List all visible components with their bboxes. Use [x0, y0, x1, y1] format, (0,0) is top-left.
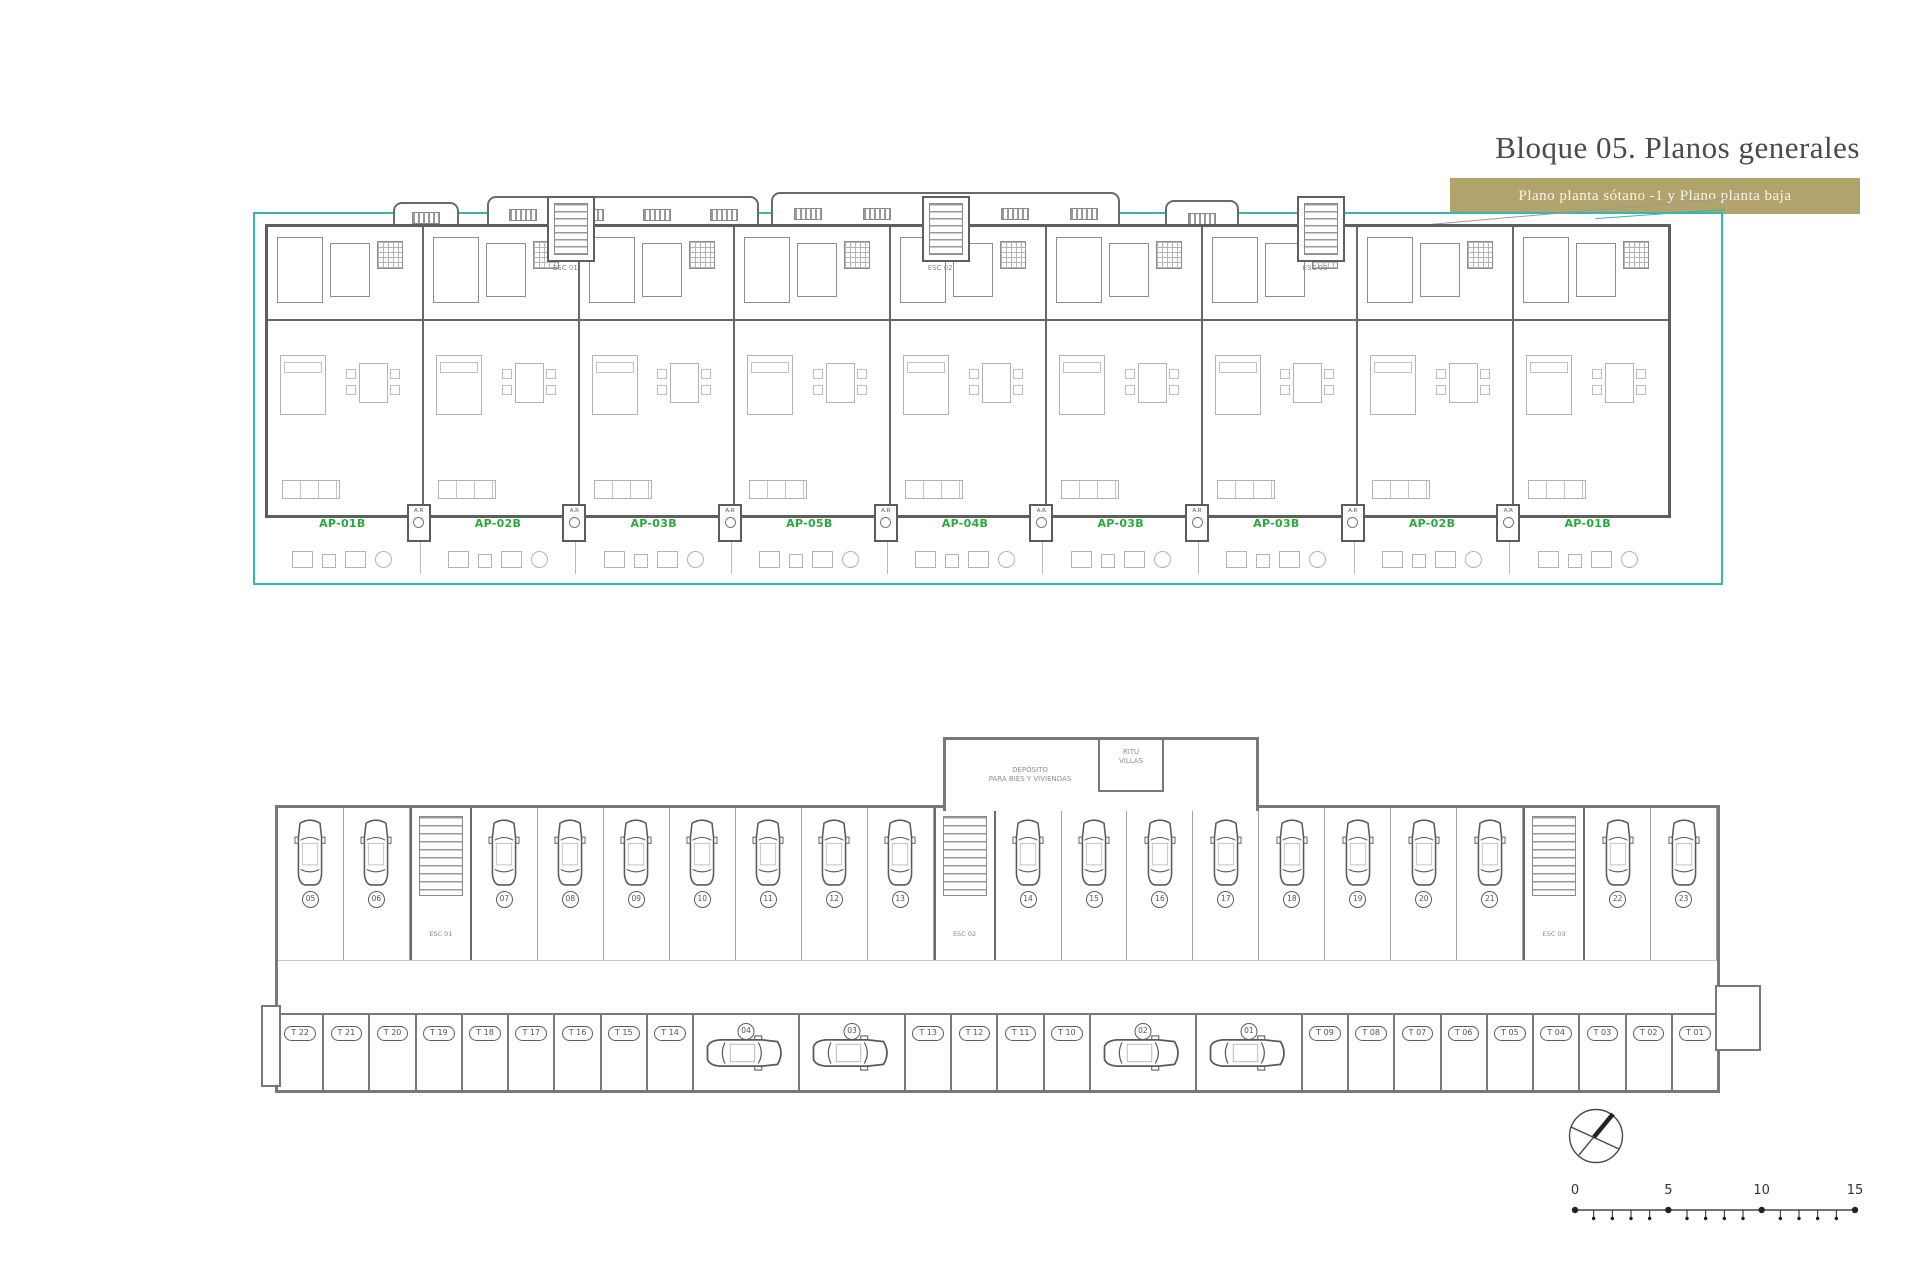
lounge-chair — [501, 551, 522, 568]
storage-label: T 11 — [1005, 1026, 1037, 1041]
storage-row: T 22 T 21 T 20 T 19 T 18 T 17 T 16 T 15 … — [278, 1013, 1717, 1090]
side-table — [1256, 554, 1270, 568]
car-icon — [553, 814, 587, 888]
bed-furniture — [1370, 355, 1416, 415]
basement-plan-sotano-1: DEPÓSITO PARA BIES Y VIVIENDAS RITU VILL… — [275, 737, 1720, 1093]
dining-table-furniture — [982, 363, 1011, 403]
storage-label: T 13 — [912, 1026, 944, 1041]
stair-core — [1297, 196, 1345, 262]
side-table — [789, 554, 803, 568]
bedroom-zone — [580, 227, 734, 321]
ritu-line2: VILLAS — [1119, 757, 1143, 765]
terrace: AP-04B A.R — [888, 512, 1044, 574]
sofa-furniture — [438, 480, 496, 499]
storage-label: T 03 — [1587, 1026, 1619, 1041]
car-icon — [1601, 814, 1635, 888]
apartment-label: AP-01B — [265, 517, 420, 530]
ar-riser-box: A.R — [1496, 504, 1520, 542]
storage-label: T 18 — [469, 1026, 501, 1041]
chair-furniture — [1125, 369, 1135, 379]
round-table — [375, 551, 392, 568]
storage-room: T 09 — [1303, 1015, 1349, 1090]
storage-room: T 06 — [1442, 1015, 1488, 1090]
scale-minor-dot — [1816, 1217, 1819, 1220]
terrace: AP-02B A.R — [421, 512, 577, 574]
chair-furniture — [1169, 385, 1179, 395]
round-table — [531, 551, 548, 568]
scale-tick-label: 5 — [1664, 1183, 1672, 1198]
vent-slat — [1070, 208, 1098, 220]
bathroom-outline — [1156, 241, 1182, 269]
chair-furniture — [1636, 369, 1646, 379]
lounge-chair — [1591, 551, 1612, 568]
storage-room: T 12 — [952, 1015, 998, 1090]
terrace: AP-03B A.R — [1043, 512, 1199, 574]
storage-room: T 17 — [509, 1015, 555, 1090]
bathroom-outline — [1623, 241, 1649, 269]
scale-minor-dot — [1704, 1217, 1707, 1220]
round-table — [1621, 551, 1638, 568]
room-outline — [797, 243, 837, 297]
scale-minor-dot — [1629, 1217, 1632, 1220]
dining-table-furniture — [1449, 363, 1478, 403]
car-icon — [1209, 814, 1243, 888]
stair-core — [922, 196, 970, 262]
scale-major-dot — [1665, 1207, 1671, 1213]
chair-furniture — [969, 369, 979, 379]
apartment-unit — [1203, 227, 1359, 515]
driving-aisle — [278, 961, 1717, 1013]
scale-minor-dot — [1592, 1217, 1595, 1220]
storage-room: T 21 — [324, 1015, 370, 1090]
room-outline — [1576, 243, 1616, 297]
ar-riser-box: A.R — [407, 504, 431, 542]
lounge-chair — [292, 551, 313, 568]
terrace: AP-03B A.R — [576, 512, 732, 574]
floor-plan-planta-baja: ESC 01 ESC 02 ESC 03 AP-01B A.R AP-02B A… — [253, 200, 1723, 585]
car-icon — [619, 814, 653, 888]
chair-furniture — [1280, 385, 1290, 395]
parking-space: 06 — [344, 808, 410, 960]
parking-space-horizontal: 03 — [800, 1015, 906, 1090]
storage-label: T 17 — [515, 1026, 547, 1041]
ar-riser-circle — [725, 517, 736, 528]
plan-sheet: Bloque 05. Planos generales Plano planta… — [0, 0, 1920, 1280]
room-outline — [589, 237, 635, 303]
terrace-row: AP-01B A.R AP-02B A.R AP-03B — [265, 512, 1665, 574]
stair-core: ESC 02 — [934, 808, 996, 960]
chair-furniture — [813, 369, 823, 379]
room-outline — [1523, 237, 1569, 303]
side-table — [322, 554, 336, 568]
chair-furniture — [546, 369, 556, 379]
ar-riser-label: A.R — [1031, 508, 1051, 514]
storage-label: T 04 — [1540, 1026, 1572, 1041]
parking-space: 08 — [538, 808, 604, 960]
terrace-furniture — [1355, 551, 1510, 568]
apartment-unit — [1514, 227, 1668, 515]
apartment-label: AP-01B — [1510, 517, 1665, 530]
parking-space: 07 — [472, 808, 538, 960]
apartment-label: AP-02B — [1355, 517, 1510, 530]
storage-label: T 08 — [1355, 1026, 1387, 1041]
scale-tick-label: 15 — [1847, 1183, 1864, 1198]
ar-riser-box: A.R — [562, 504, 586, 542]
chair-furniture — [1592, 385, 1602, 395]
chair-furniture — [1436, 369, 1446, 379]
chair-furniture — [1480, 385, 1490, 395]
bathroom-outline — [689, 241, 715, 269]
round-table — [1309, 551, 1326, 568]
parking-space: 23 — [1651, 808, 1717, 960]
lounge-chair — [1226, 551, 1247, 568]
scale-minor-dot — [1648, 1217, 1651, 1220]
terrace: AP-02B A.R — [1355, 512, 1511, 574]
parking-space: 17 — [1193, 808, 1259, 960]
ritu-room: RITU VILLAS — [1098, 740, 1164, 792]
scale-tick-label: 10 — [1753, 1183, 1770, 1198]
sofa-furniture — [1528, 480, 1586, 499]
parking-number: 05 — [302, 891, 319, 908]
bedroom-zone — [1514, 227, 1668, 321]
parking-number: 14 — [1020, 891, 1037, 908]
dining-table-furniture — [1138, 363, 1167, 403]
room-outline — [642, 243, 682, 297]
apartment-unit — [1358, 227, 1514, 515]
room-outline — [1212, 237, 1258, 303]
bed-furniture — [747, 355, 793, 415]
ar-riser-label: A.R — [409, 508, 429, 514]
parking-number: 17 — [1217, 891, 1234, 908]
chair-furniture — [969, 385, 979, 395]
parking-number: 03 — [844, 1023, 861, 1040]
north-arrow-icon — [1566, 1106, 1626, 1166]
room-outline — [330, 243, 370, 297]
sofa-furniture — [1372, 480, 1430, 499]
chair-furniture — [1592, 369, 1602, 379]
car-icon — [817, 814, 851, 888]
bed-furniture — [903, 355, 949, 415]
chair-furniture — [657, 369, 667, 379]
storage-label: T 20 — [377, 1026, 409, 1041]
parking-space: 18 — [1259, 808, 1325, 960]
chair-furniture — [346, 385, 356, 395]
chair-furniture — [813, 385, 823, 395]
scale-minor-dot — [1723, 1217, 1726, 1220]
ar-riser-box: A.R — [1029, 504, 1053, 542]
parking-number: 08 — [562, 891, 579, 908]
room-outline — [744, 237, 790, 303]
chair-furniture — [346, 369, 356, 379]
terrace-furniture — [1043, 551, 1198, 568]
terrace-furniture — [888, 551, 1043, 568]
parking-space: 09 — [604, 808, 670, 960]
ar-riser-label: A.R — [1498, 508, 1518, 514]
terrace-furniture — [421, 551, 576, 568]
ar-riser-box: A.R — [1185, 504, 1209, 542]
storage-label: T 01 — [1679, 1026, 1711, 1041]
ar-riser-box: A.R — [718, 504, 742, 542]
car-icon — [1275, 814, 1309, 888]
lounge-chair — [345, 551, 366, 568]
lounge-chair — [1435, 551, 1456, 568]
room-outline — [1109, 243, 1149, 297]
bed-furniture — [1215, 355, 1261, 415]
chair-furniture — [701, 369, 711, 379]
ar-riser-circle — [1192, 517, 1203, 528]
terrace: AP-03B A.R — [1199, 512, 1355, 574]
scale-minor-dot — [1685, 1217, 1688, 1220]
vent-slat — [509, 209, 537, 221]
terrace-furniture — [1199, 551, 1354, 568]
parking-number: 13 — [892, 891, 909, 908]
storage-room: T 10 — [1045, 1015, 1091, 1090]
terrace-furniture — [732, 551, 887, 568]
stair-label: ESC 01 — [553, 264, 578, 272]
storage-room: T 04 — [1534, 1015, 1580, 1090]
deposit-room-label: DEPÓSITO PARA BIES Y VIVIENDAS — [960, 766, 1100, 784]
chair-furniture — [1125, 385, 1135, 395]
storage-room: T 07 — [1395, 1015, 1441, 1090]
storage-label: T 16 — [562, 1026, 594, 1041]
terrace-furniture — [576, 551, 731, 568]
lounge-chair — [812, 551, 833, 568]
lounge-chair — [1124, 551, 1145, 568]
storage-label: T 15 — [608, 1026, 640, 1041]
room-outline — [1367, 237, 1413, 303]
scale-minor-dot — [1835, 1217, 1838, 1220]
lounge-chair — [1382, 551, 1403, 568]
storage-room: T 02 — [1627, 1015, 1673, 1090]
room-outline — [1056, 237, 1102, 303]
parking-space-horizontal: 01 — [1197, 1015, 1303, 1090]
parking-space: 11 — [736, 808, 802, 960]
scale-minor-dot — [1611, 1217, 1614, 1220]
sofa-furniture — [905, 480, 963, 499]
garage-outline: 05 06 ESC 01 07 08 09 10 11 12 13 ESC 02 — [275, 805, 1720, 1093]
apartment-unit — [891, 227, 1047, 515]
scale-major-dot — [1572, 1207, 1578, 1213]
storage-label: T 07 — [1402, 1026, 1434, 1041]
parking-number: 23 — [1675, 891, 1692, 908]
sofa-furniture — [1061, 480, 1119, 499]
storage-room: T 22 — [278, 1015, 324, 1090]
parking-space: 16 — [1127, 808, 1193, 960]
vent-slat — [643, 209, 671, 221]
apartment-unit — [580, 227, 736, 515]
parking-space: 21 — [1457, 808, 1523, 960]
bathroom-outline — [377, 241, 403, 269]
scale-bar: 051015 — [1565, 1172, 1865, 1230]
stair-core — [547, 196, 595, 262]
chair-furniture — [1436, 385, 1446, 395]
sofa-furniture — [749, 480, 807, 499]
bathroom-outline — [844, 241, 870, 269]
storage-room: T 15 — [602, 1015, 648, 1090]
chair-furniture — [1013, 385, 1023, 395]
round-table — [998, 551, 1015, 568]
bed-furniture — [1059, 355, 1105, 415]
dining-table-furniture — [1293, 363, 1322, 403]
parking-space-horizontal: 04 — [694, 1015, 800, 1090]
bathroom-outline — [1467, 241, 1493, 269]
dining-table-furniture — [359, 363, 388, 403]
apartment-unit — [735, 227, 891, 515]
storage-room: T 08 — [1349, 1015, 1395, 1090]
chair-furniture — [1324, 385, 1334, 395]
vent-slat — [794, 208, 822, 220]
parking-space: 10 — [670, 808, 736, 960]
ar-riser-circle — [569, 517, 580, 528]
car-icon — [1667, 814, 1701, 888]
lounge-chair — [1279, 551, 1300, 568]
side-table — [1101, 554, 1115, 568]
storage-label: T 02 — [1633, 1026, 1665, 1041]
chair-furniture — [390, 385, 400, 395]
parking-space: 15 — [1062, 808, 1128, 960]
parking-space: 22 — [1585, 808, 1651, 960]
chair-furniture — [1013, 369, 1023, 379]
ar-riser-circle — [1347, 517, 1358, 528]
deposit-block: DEPÓSITO PARA BIES Y VIVIENDAS RITU VILL… — [943, 737, 1259, 811]
parking-number: 18 — [1283, 891, 1300, 908]
storage-room: T 20 — [370, 1015, 416, 1090]
bathroom-outline — [1000, 241, 1026, 269]
parking-number: 10 — [694, 891, 711, 908]
parking-number: 04 — [738, 1023, 755, 1040]
ar-riser-circle — [880, 517, 891, 528]
car-icon — [1011, 814, 1045, 888]
parking-space: 14 — [996, 808, 1062, 960]
stairs-icon — [554, 203, 588, 255]
dining-table-furniture — [1605, 363, 1634, 403]
apartment-label: AP-03B — [576, 517, 731, 530]
side-table — [945, 554, 959, 568]
chair-furniture — [546, 385, 556, 395]
stairs-icon — [943, 816, 987, 896]
bed-furniture — [280, 355, 326, 415]
storage-room: T 14 — [648, 1015, 694, 1090]
stair-label: ESC 03 — [1525, 930, 1583, 938]
chair-furniture — [857, 369, 867, 379]
storage-label: T 06 — [1448, 1026, 1480, 1041]
round-table — [687, 551, 704, 568]
lounge-chair — [657, 551, 678, 568]
room-outline — [433, 237, 479, 303]
parking-number: 15 — [1086, 891, 1103, 908]
car-icon — [685, 814, 719, 888]
dining-table-furniture — [670, 363, 699, 403]
chair-furniture — [1280, 369, 1290, 379]
car-icon — [1473, 814, 1507, 888]
lounge-chair — [448, 551, 469, 568]
bed-furniture — [592, 355, 638, 415]
apartment-label: AP-03B — [1043, 517, 1198, 530]
parking-number: 12 — [826, 891, 843, 908]
lounge-chair — [1538, 551, 1559, 568]
vent-slat — [412, 212, 440, 224]
parking-space-horizontal: 02 — [1091, 1015, 1197, 1090]
parking-space: 19 — [1325, 808, 1391, 960]
ar-riser-label: A.R — [564, 508, 584, 514]
ar-riser-circle — [413, 517, 424, 528]
chair-furniture — [1169, 369, 1179, 379]
storage-room: T 01 — [1673, 1015, 1717, 1090]
parking-space: 13 — [868, 808, 934, 960]
stairs-icon — [1532, 816, 1576, 896]
car-icon — [1407, 814, 1441, 888]
car-icon — [487, 814, 521, 888]
stairs-icon — [419, 816, 463, 896]
bedroom-zone — [1358, 227, 1512, 321]
scale-major-dot — [1758, 1207, 1764, 1213]
scale-major-dot — [1852, 1207, 1858, 1213]
parking-number: 09 — [628, 891, 645, 908]
dining-table-furniture — [826, 363, 855, 403]
sofa-furniture — [282, 480, 340, 499]
car-icon — [883, 814, 917, 888]
vent-slat — [863, 208, 891, 220]
lounge-chair — [1071, 551, 1092, 568]
terrace-furniture — [1510, 551, 1665, 568]
stair-label: ESC 02 — [928, 264, 953, 272]
side-table — [634, 554, 648, 568]
scale-minor-dot — [1741, 1217, 1744, 1220]
parking-number: 19 — [1349, 891, 1366, 908]
chair-furniture — [1324, 369, 1334, 379]
ar-riser-box: A.R — [874, 504, 898, 542]
storage-room: T 03 — [1580, 1015, 1626, 1090]
stairs-icon — [929, 203, 963, 255]
lounge-chair — [759, 551, 780, 568]
lounge-chair — [604, 551, 625, 568]
side-table — [1412, 554, 1426, 568]
parking-number: 20 — [1415, 891, 1432, 908]
scale-minor-dot — [1779, 1217, 1782, 1220]
chair-furniture — [1480, 369, 1490, 379]
chair-furniture — [857, 385, 867, 395]
bed-furniture — [436, 355, 482, 415]
stair-label: ESC 03 — [1303, 264, 1328, 272]
terrace-furniture — [265, 551, 420, 568]
parking-number: 01 — [1240, 1023, 1257, 1040]
stair-core: ESC 01 — [410, 808, 472, 960]
parking-number: 06 — [368, 891, 385, 908]
side-table — [1568, 554, 1582, 568]
chair-furniture — [502, 385, 512, 395]
ar-riser-label: A.R — [876, 508, 896, 514]
storage-room: T 13 — [906, 1015, 952, 1090]
storage-room: T 16 — [555, 1015, 601, 1090]
bedroom-zone — [1047, 227, 1201, 321]
parking-number: 21 — [1481, 891, 1498, 908]
apartment-building — [265, 224, 1671, 518]
parking-space: 05 — [278, 808, 344, 960]
round-table — [1154, 551, 1171, 568]
stair-label: ESC 01 — [412, 930, 470, 938]
parking-number: 16 — [1151, 891, 1168, 908]
storage-label: T 10 — [1051, 1026, 1083, 1041]
storage-room: T 19 — [417, 1015, 463, 1090]
ar-riser-label: A.R — [1343, 508, 1363, 514]
bedroom-zone — [735, 227, 889, 321]
apartment-label: AP-03B — [1199, 517, 1354, 530]
round-table — [842, 551, 859, 568]
car-icon — [751, 814, 785, 888]
chair-furniture — [657, 385, 667, 395]
scale-minor-dot — [1797, 1217, 1800, 1220]
deposit-line2: PARA BIES Y VIVIENDAS — [989, 775, 1071, 783]
